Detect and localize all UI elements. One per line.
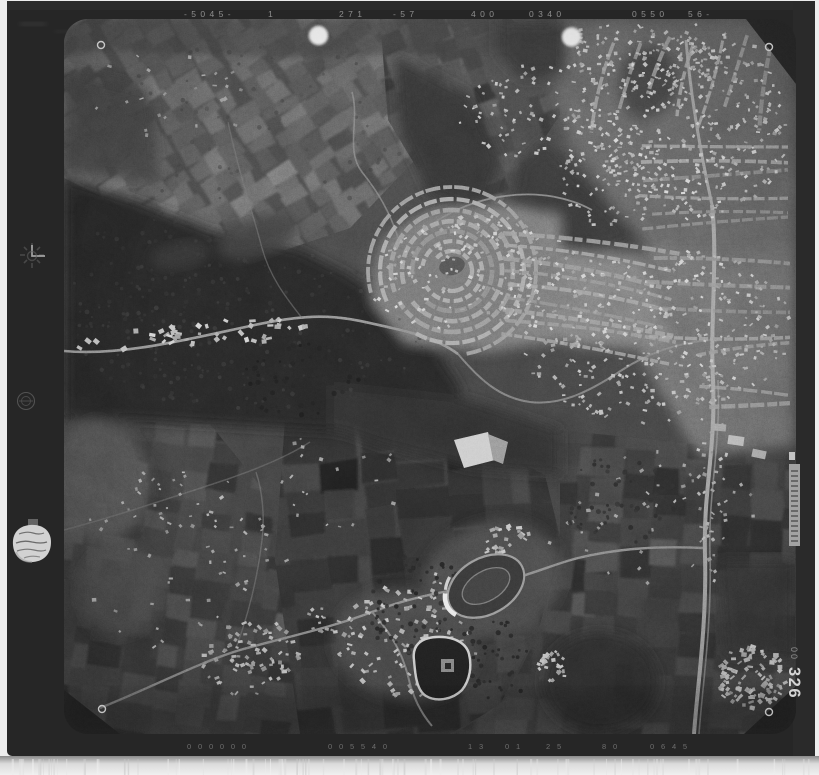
svg-text:0550: 0550	[632, 9, 669, 19]
svg-text:01: 01	[505, 742, 527, 751]
svg-text:-57: -57	[393, 9, 419, 19]
svg-text:000000: 000000	[187, 742, 253, 751]
svg-text:56-: 56-	[688, 9, 714, 19]
svg-text:400: 400	[471, 9, 498, 19]
svg-text:1: 1	[268, 9, 277, 19]
svg-text:005540: 005540	[328, 742, 394, 751]
svg-text:326: 326	[785, 667, 803, 699]
svg-text:25: 25	[546, 742, 568, 751]
svg-text:80: 80	[602, 742, 624, 751]
svg-text:00: 00	[789, 647, 799, 661]
svg-text:-5045-: -5045-	[184, 9, 235, 19]
svg-text:0645: 0645	[650, 742, 694, 751]
svg-text:271: 271	[339, 9, 366, 19]
svg-text:0340: 0340	[529, 9, 566, 19]
svg-text:13: 13	[468, 742, 490, 751]
